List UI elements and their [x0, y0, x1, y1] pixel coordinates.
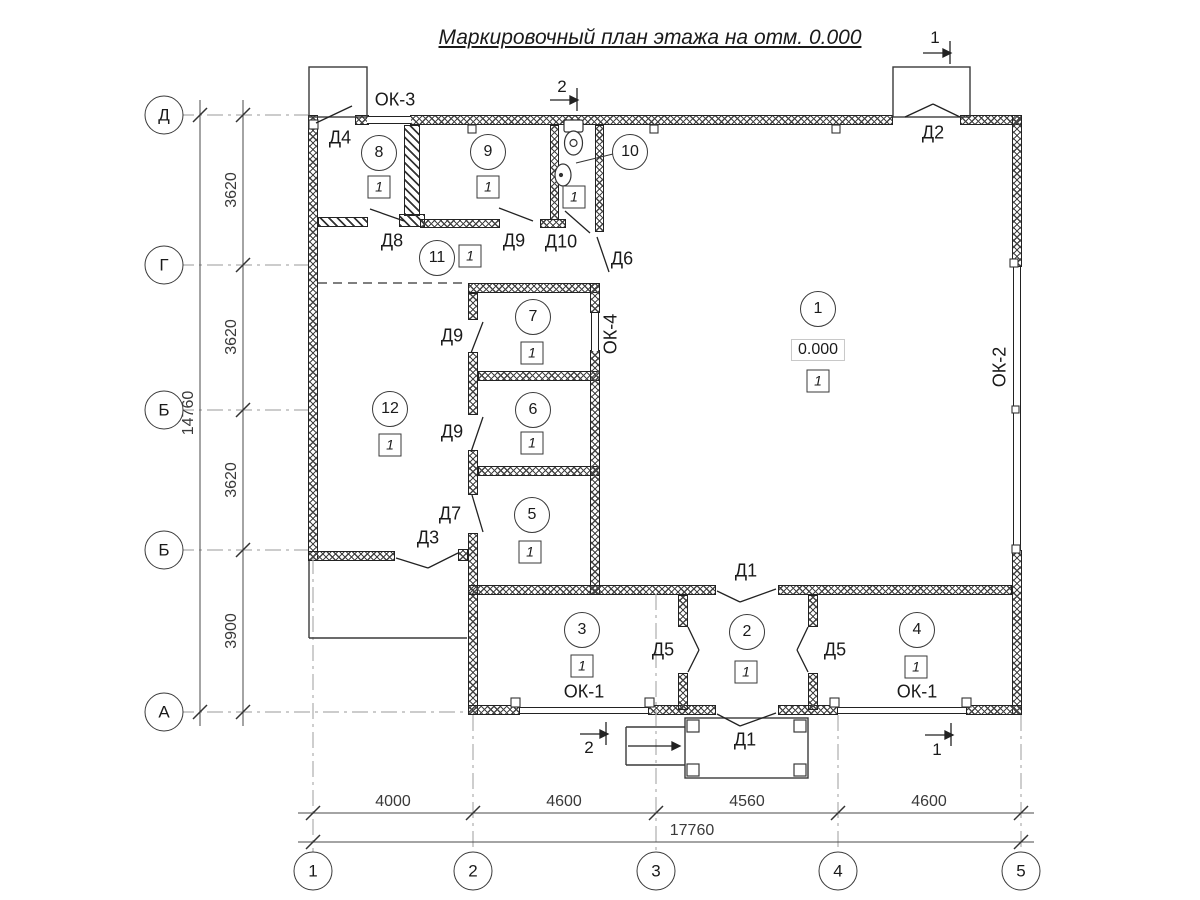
section-label-1-top: 1	[930, 28, 939, 48]
door-label-d5b: Д5	[824, 640, 846, 661]
dim-3620c: 3620	[223, 462, 241, 498]
window-label-ok1a: ОК-1	[564, 682, 605, 703]
door-label-d9a: Д9	[503, 231, 525, 252]
door-label-d3: Д3	[417, 528, 439, 549]
wall-room3-2-top	[678, 595, 688, 627]
window-ok1-right	[838, 707, 966, 714]
window-label-ok2: ОК-2	[990, 347, 1011, 388]
wall-bottom-seg4	[966, 705, 1022, 715]
finish-mark-1: 1	[807, 370, 830, 393]
wall-left	[308, 115, 318, 561]
finish-mark-7: 1	[521, 342, 544, 365]
dim-4600b: 4600	[911, 793, 947, 811]
wall-room9-bottom-a	[420, 219, 500, 228]
wall-stack-left-p1	[468, 293, 478, 320]
wall-room6-5	[478, 466, 600, 476]
finish-mark-10: 1	[563, 186, 586, 209]
door-label-d1a: Д1	[735, 561, 757, 582]
dim-4560: 4560	[729, 793, 765, 811]
room-circle-6: 6	[515, 392, 551, 428]
wall-room7-top	[468, 283, 600, 293]
toilet-icon	[564, 120, 583, 155]
wall-bottom-seg1	[468, 705, 520, 715]
axis-col-3: 3	[637, 852, 676, 891]
wall-axisB-left	[308, 551, 395, 561]
wall-room2-4-bottom	[808, 673, 818, 710]
door-label-d8: Д8	[381, 231, 403, 252]
finish-mark-9: 1	[477, 176, 500, 199]
room-circle-2: 2	[729, 614, 765, 650]
axis-col-2: 2	[454, 852, 493, 891]
wall-room7-6	[478, 371, 600, 381]
door-label-d2: Д2	[922, 123, 944, 144]
door-label-d9c: Д9	[441, 422, 463, 443]
window-ok4	[591, 313, 599, 351]
finish-mark-8: 1	[368, 176, 391, 199]
wall-room8-9-divider	[404, 125, 420, 216]
section-label-1-bottom: 1	[932, 740, 941, 760]
window-ok1-left	[520, 707, 648, 714]
room-circle-10: 10	[612, 134, 648, 170]
door-label-d10: Д10	[545, 232, 577, 253]
axis-row-B1: Б	[145, 391, 184, 430]
door-label-d4: Д4	[329, 128, 351, 149]
wall-d3-jamb	[458, 549, 468, 561]
axis-row-G: Г	[145, 246, 184, 285]
section-label-2-top: 2	[557, 77, 566, 97]
room-circle-8: 8	[361, 135, 397, 171]
dimension-lines	[200, 100, 1034, 842]
wall-lowerblock-top-right	[778, 585, 1012, 595]
door-label-d6: Д6	[611, 249, 633, 270]
wall-stack-right-p2	[590, 350, 600, 595]
axis-col-5: 5	[1002, 852, 1041, 891]
window-ok3	[367, 116, 411, 124]
room-circle-1: 1	[800, 291, 836, 327]
axis-row-B2: Б	[145, 531, 184, 570]
wall-lowerblock-top-left	[468, 585, 716, 595]
wall-stack-left-p3	[468, 450, 478, 495]
finish-mark-5: 1	[519, 541, 542, 564]
dim-4000: 4000	[375, 793, 411, 811]
wall-room10-left	[550, 125, 559, 220]
door-label-d9b: Д9	[441, 326, 463, 347]
section-label-2-bottom: 2	[584, 738, 593, 758]
axis-row-A: А	[145, 693, 184, 732]
wall-top-main	[410, 115, 893, 125]
window-label-ok4: ОК-4	[601, 314, 622, 355]
wall-stack-left-p2	[468, 352, 478, 415]
finish-mark-4: 1	[905, 656, 928, 679]
window-label-ok1b: ОК-1	[897, 682, 938, 703]
finish-mark-6: 1	[521, 432, 544, 455]
wall-room9-bottom-b	[540, 219, 566, 228]
wall-room10-right	[595, 125, 604, 232]
floor-plan: Маркировочный план этажа на отм. 0.000	[0, 0, 1200, 900]
wall-room3-2-bottom	[678, 673, 688, 710]
finish-mark-3: 1	[571, 655, 594, 678]
axis-col-4: 4	[819, 852, 858, 891]
room-circle-5: 5	[514, 497, 550, 533]
wall-room2-4-top	[808, 595, 818, 627]
door-label-d7: Д7	[439, 504, 461, 525]
axis-row-D: Д	[145, 96, 184, 135]
finish-mark-11: 1	[459, 245, 482, 268]
dim-3620b: 3620	[223, 319, 241, 355]
dim-3900: 3900	[223, 613, 241, 649]
room-circle-9: 9	[470, 134, 506, 170]
elevation-mark: 0.000	[791, 339, 845, 361]
wall-stack-right-p1	[590, 283, 600, 313]
dim-3620a: 3620	[223, 172, 241, 208]
dim-total-bottom: 17760	[670, 822, 715, 840]
window-label-ok3: ОК-3	[375, 90, 416, 111]
window-ok2	[1013, 267, 1021, 550]
room-circle-11: 11	[419, 240, 455, 276]
room-circle-12: 12	[372, 391, 408, 427]
wall-right-lower	[1012, 550, 1022, 715]
wall-stack-left-p4	[468, 533, 478, 715]
door-label-d5a: Д5	[652, 640, 674, 661]
wall-right-upper	[1012, 115, 1022, 267]
finish-mark-2: 1	[735, 661, 758, 684]
plan-title: Маркировочный план этажа на отм. 0.000	[439, 26, 862, 50]
axis-col-1: 1	[294, 852, 333, 891]
dim-4600a: 4600	[546, 793, 582, 811]
room-circle-4: 4	[899, 612, 935, 648]
finish-mark-12: 1	[379, 434, 402, 457]
room-circle-3: 3	[564, 612, 600, 648]
door-label-d1b: Д1	[734, 730, 756, 751]
room-circle-7: 7	[515, 299, 551, 335]
wall-room8-bottom	[318, 217, 368, 227]
